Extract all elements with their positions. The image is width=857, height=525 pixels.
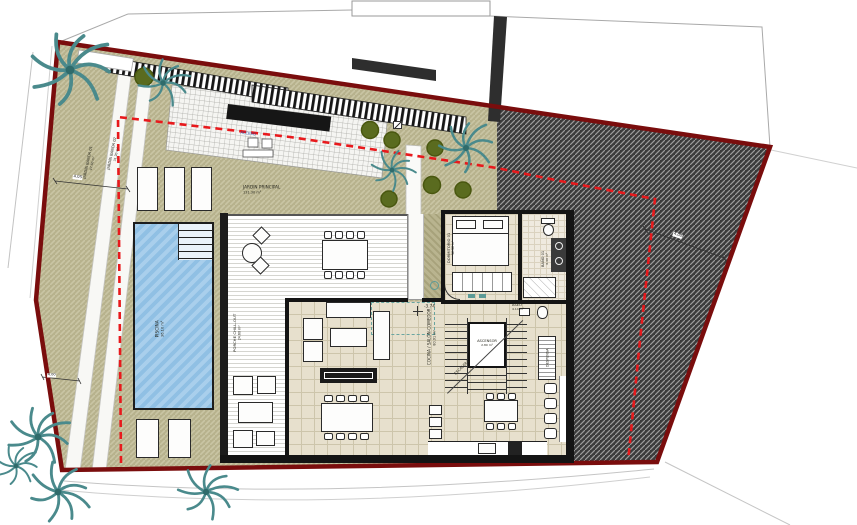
shower xyxy=(523,277,556,298)
cooktop xyxy=(508,442,522,455)
tall-unit xyxy=(429,405,442,415)
bar-stool xyxy=(544,383,557,394)
chair xyxy=(324,231,332,239)
level-label: -3.74 xyxy=(424,304,441,309)
entry-path xyxy=(408,214,424,300)
aseo-area: 4.14 m² xyxy=(512,308,530,312)
dim-left-value: 4.00 xyxy=(48,373,56,377)
elevator-label: ASCENSOR 2.80 m² xyxy=(476,339,499,347)
sofa xyxy=(326,302,371,318)
wardrobe xyxy=(452,272,512,292)
living-label: COCINA / SALÓN-COMEDOR 80.91 m² xyxy=(427,311,436,365)
porch-label: PORCHE CHILL-OUT 24.60 m² xyxy=(233,310,242,356)
tall-unit xyxy=(429,429,442,439)
living-name: COCINA / SALÓN-COMEDOR xyxy=(427,308,432,365)
porch-name: PORCHE CHILL-OUT xyxy=(233,314,238,352)
stool xyxy=(486,393,494,400)
chair xyxy=(324,271,332,279)
chair xyxy=(357,271,365,279)
elevator-name: ASCENSOR xyxy=(477,339,497,343)
bedroom-label: DORMITORIO 01 16.38 m² xyxy=(447,226,456,269)
stair-treads-right xyxy=(506,318,527,394)
tv-screen xyxy=(324,372,373,379)
bedroom-name: DORMITORIO 01 xyxy=(447,233,451,263)
wall xyxy=(566,210,574,463)
sun-lounger xyxy=(191,167,212,211)
toilet-bowl xyxy=(543,224,554,236)
stool xyxy=(508,423,516,430)
armchair xyxy=(303,341,323,362)
chair xyxy=(360,395,369,402)
bed-sheet-line xyxy=(452,233,509,234)
pool-area: 36.10 m² xyxy=(160,306,165,352)
wall xyxy=(441,300,574,304)
bath-name: BAÑO 01 xyxy=(541,251,545,267)
pillow xyxy=(456,220,476,229)
chair xyxy=(348,395,357,402)
porch-armchair xyxy=(233,430,253,448)
sun-lounger xyxy=(164,167,185,211)
bath-label: BAÑO 01 6.40 m² xyxy=(541,241,549,277)
sun-lounger xyxy=(137,167,158,211)
chair xyxy=(336,395,345,402)
chair xyxy=(335,271,343,279)
wall xyxy=(422,298,443,302)
stool xyxy=(497,423,505,430)
sink xyxy=(555,257,563,265)
pantry-label: DESPENSA xyxy=(546,340,550,375)
pool-steps xyxy=(178,224,212,260)
chair xyxy=(360,433,369,440)
porch-armchair xyxy=(257,376,276,394)
garden-main-label: JARDÍN PRINCIPAL 131.30 m² xyxy=(243,185,286,195)
garden-main-name: JARDÍN PRINCIPAL xyxy=(243,185,280,190)
level-cross xyxy=(417,306,418,316)
living-area: 80.91 m² xyxy=(432,311,436,365)
pool-name: PISCINA xyxy=(155,320,160,337)
chair xyxy=(346,231,354,239)
kitchen-sink xyxy=(478,443,496,454)
porch-armchair xyxy=(256,431,275,446)
floor-plan-canvas: JARDÍN PRINCIPAL 131.30 m² JARDÍN BANDA … xyxy=(0,0,857,525)
level-value: -3.74 xyxy=(424,304,435,309)
sofa xyxy=(373,311,390,360)
dim-paths: 4.05 xyxy=(72,175,82,180)
stool xyxy=(486,423,494,430)
wall xyxy=(285,298,289,462)
chair xyxy=(346,271,354,279)
entry-door xyxy=(408,299,422,300)
bar-stool xyxy=(544,413,557,424)
porch-armchair xyxy=(233,376,253,395)
stool xyxy=(508,393,516,400)
chair xyxy=(357,231,365,239)
ceiling-light xyxy=(479,294,486,298)
wall xyxy=(441,210,574,214)
plant xyxy=(430,281,439,290)
aseo-label: ASEO 4.14 m² xyxy=(512,303,530,311)
chair xyxy=(324,395,333,402)
bedroom-area: 16.38 m² xyxy=(451,226,455,269)
outdoor-dining-table xyxy=(322,240,368,270)
sun-lounger xyxy=(168,419,191,458)
sink xyxy=(555,242,563,250)
bar-stool xyxy=(544,398,557,409)
tall-unit xyxy=(429,417,442,427)
aseo-toilet xyxy=(537,306,548,319)
pillow xyxy=(483,220,503,229)
pantry-text: DESPENSA xyxy=(546,348,550,367)
wall xyxy=(441,210,445,304)
dim-paths-value: 4.05 xyxy=(73,174,82,179)
dim-left: 4.00 xyxy=(47,373,56,377)
dining-table xyxy=(321,403,373,432)
wall xyxy=(220,455,574,463)
level-cross xyxy=(413,311,423,312)
bar-stool xyxy=(544,428,557,439)
armchair xyxy=(303,318,323,340)
wall xyxy=(285,298,408,302)
elevator-area: 2.80 m² xyxy=(476,343,499,347)
stool xyxy=(497,393,505,400)
garden-main-area: 131.30 m² xyxy=(243,190,286,194)
chair xyxy=(348,433,357,440)
porch-table xyxy=(238,402,273,423)
chair xyxy=(335,231,343,239)
stair-treads-bottom xyxy=(468,369,506,394)
pool-label: PISCINA 36.10 m² xyxy=(155,306,165,352)
porch-area: 24.60 m² xyxy=(237,310,241,356)
chair xyxy=(324,433,333,440)
coffee-table xyxy=(330,328,367,347)
kitchen-island xyxy=(484,400,518,422)
aseo-name: ASEO xyxy=(512,303,522,307)
bath-area: 6.40 m² xyxy=(545,241,549,277)
pergola-band xyxy=(220,213,228,463)
ceiling-light xyxy=(468,294,475,298)
sun-lounger xyxy=(136,419,159,458)
wall xyxy=(518,210,522,304)
level-marker xyxy=(393,121,402,129)
chair xyxy=(336,433,345,440)
